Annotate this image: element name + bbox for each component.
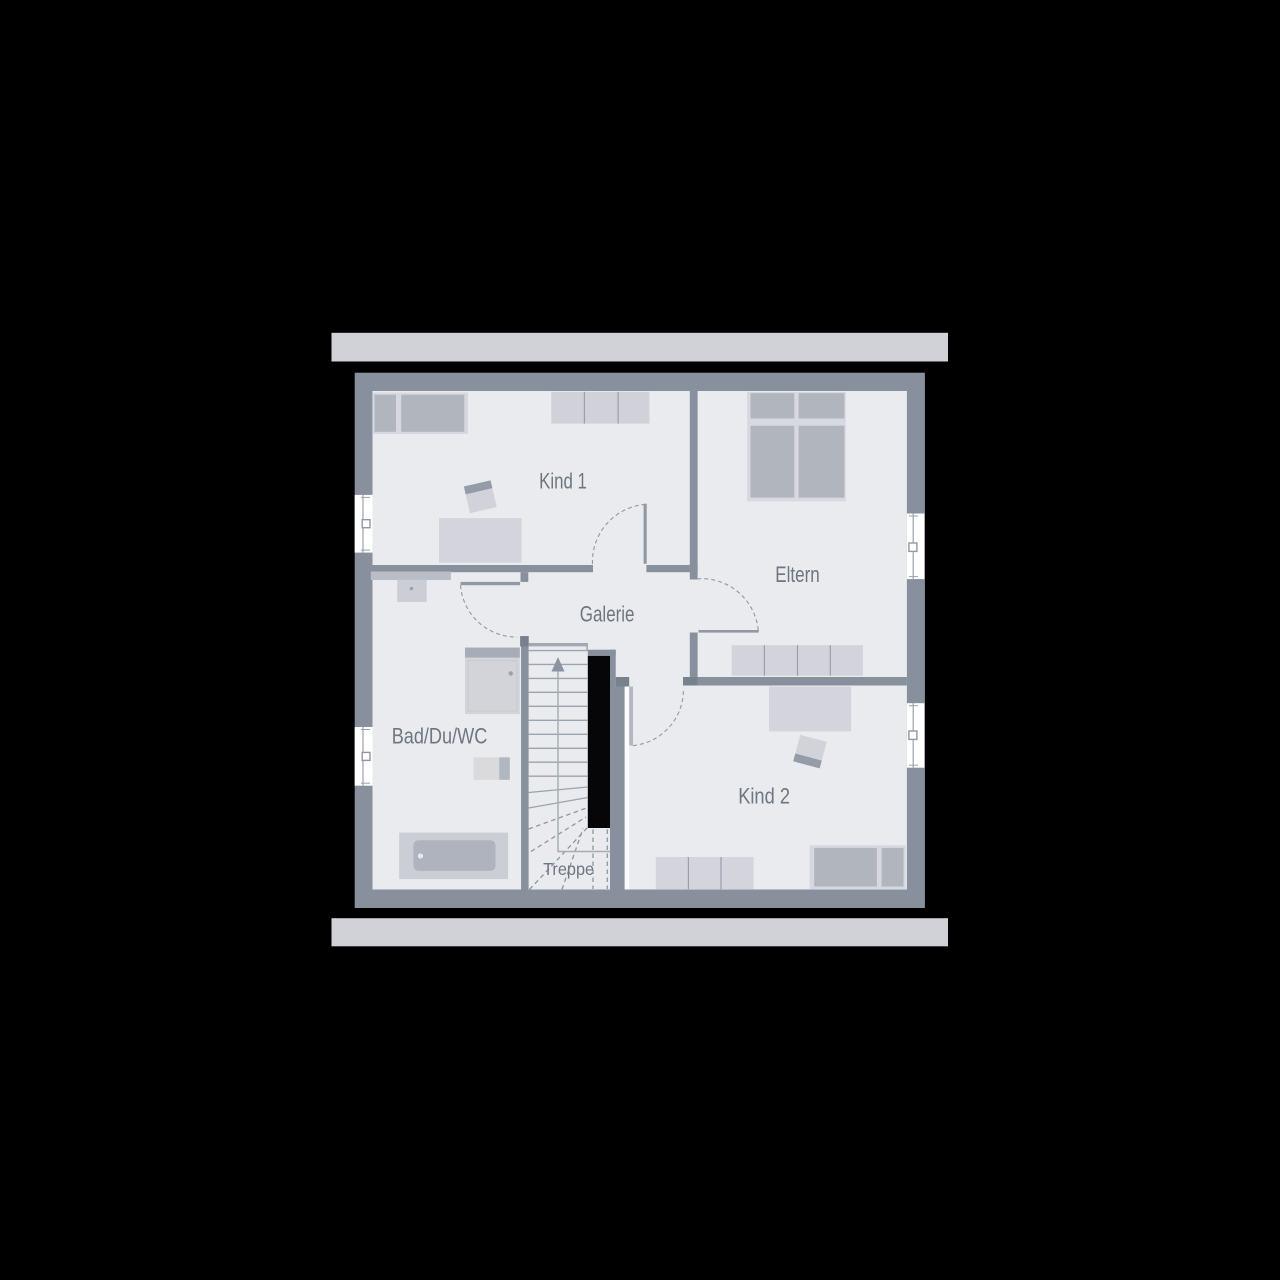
- svg-text:Treppe: Treppe: [543, 859, 594, 879]
- svg-text:Kind 2: Kind 2: [738, 784, 790, 809]
- svg-text:Galerie: Galerie: [580, 601, 635, 626]
- svg-text:Kind 1: Kind 1: [539, 468, 587, 493]
- svg-text:Bad/Du/WC: Bad/Du/WC: [392, 724, 488, 749]
- svg-text:Eltern: Eltern: [775, 562, 819, 587]
